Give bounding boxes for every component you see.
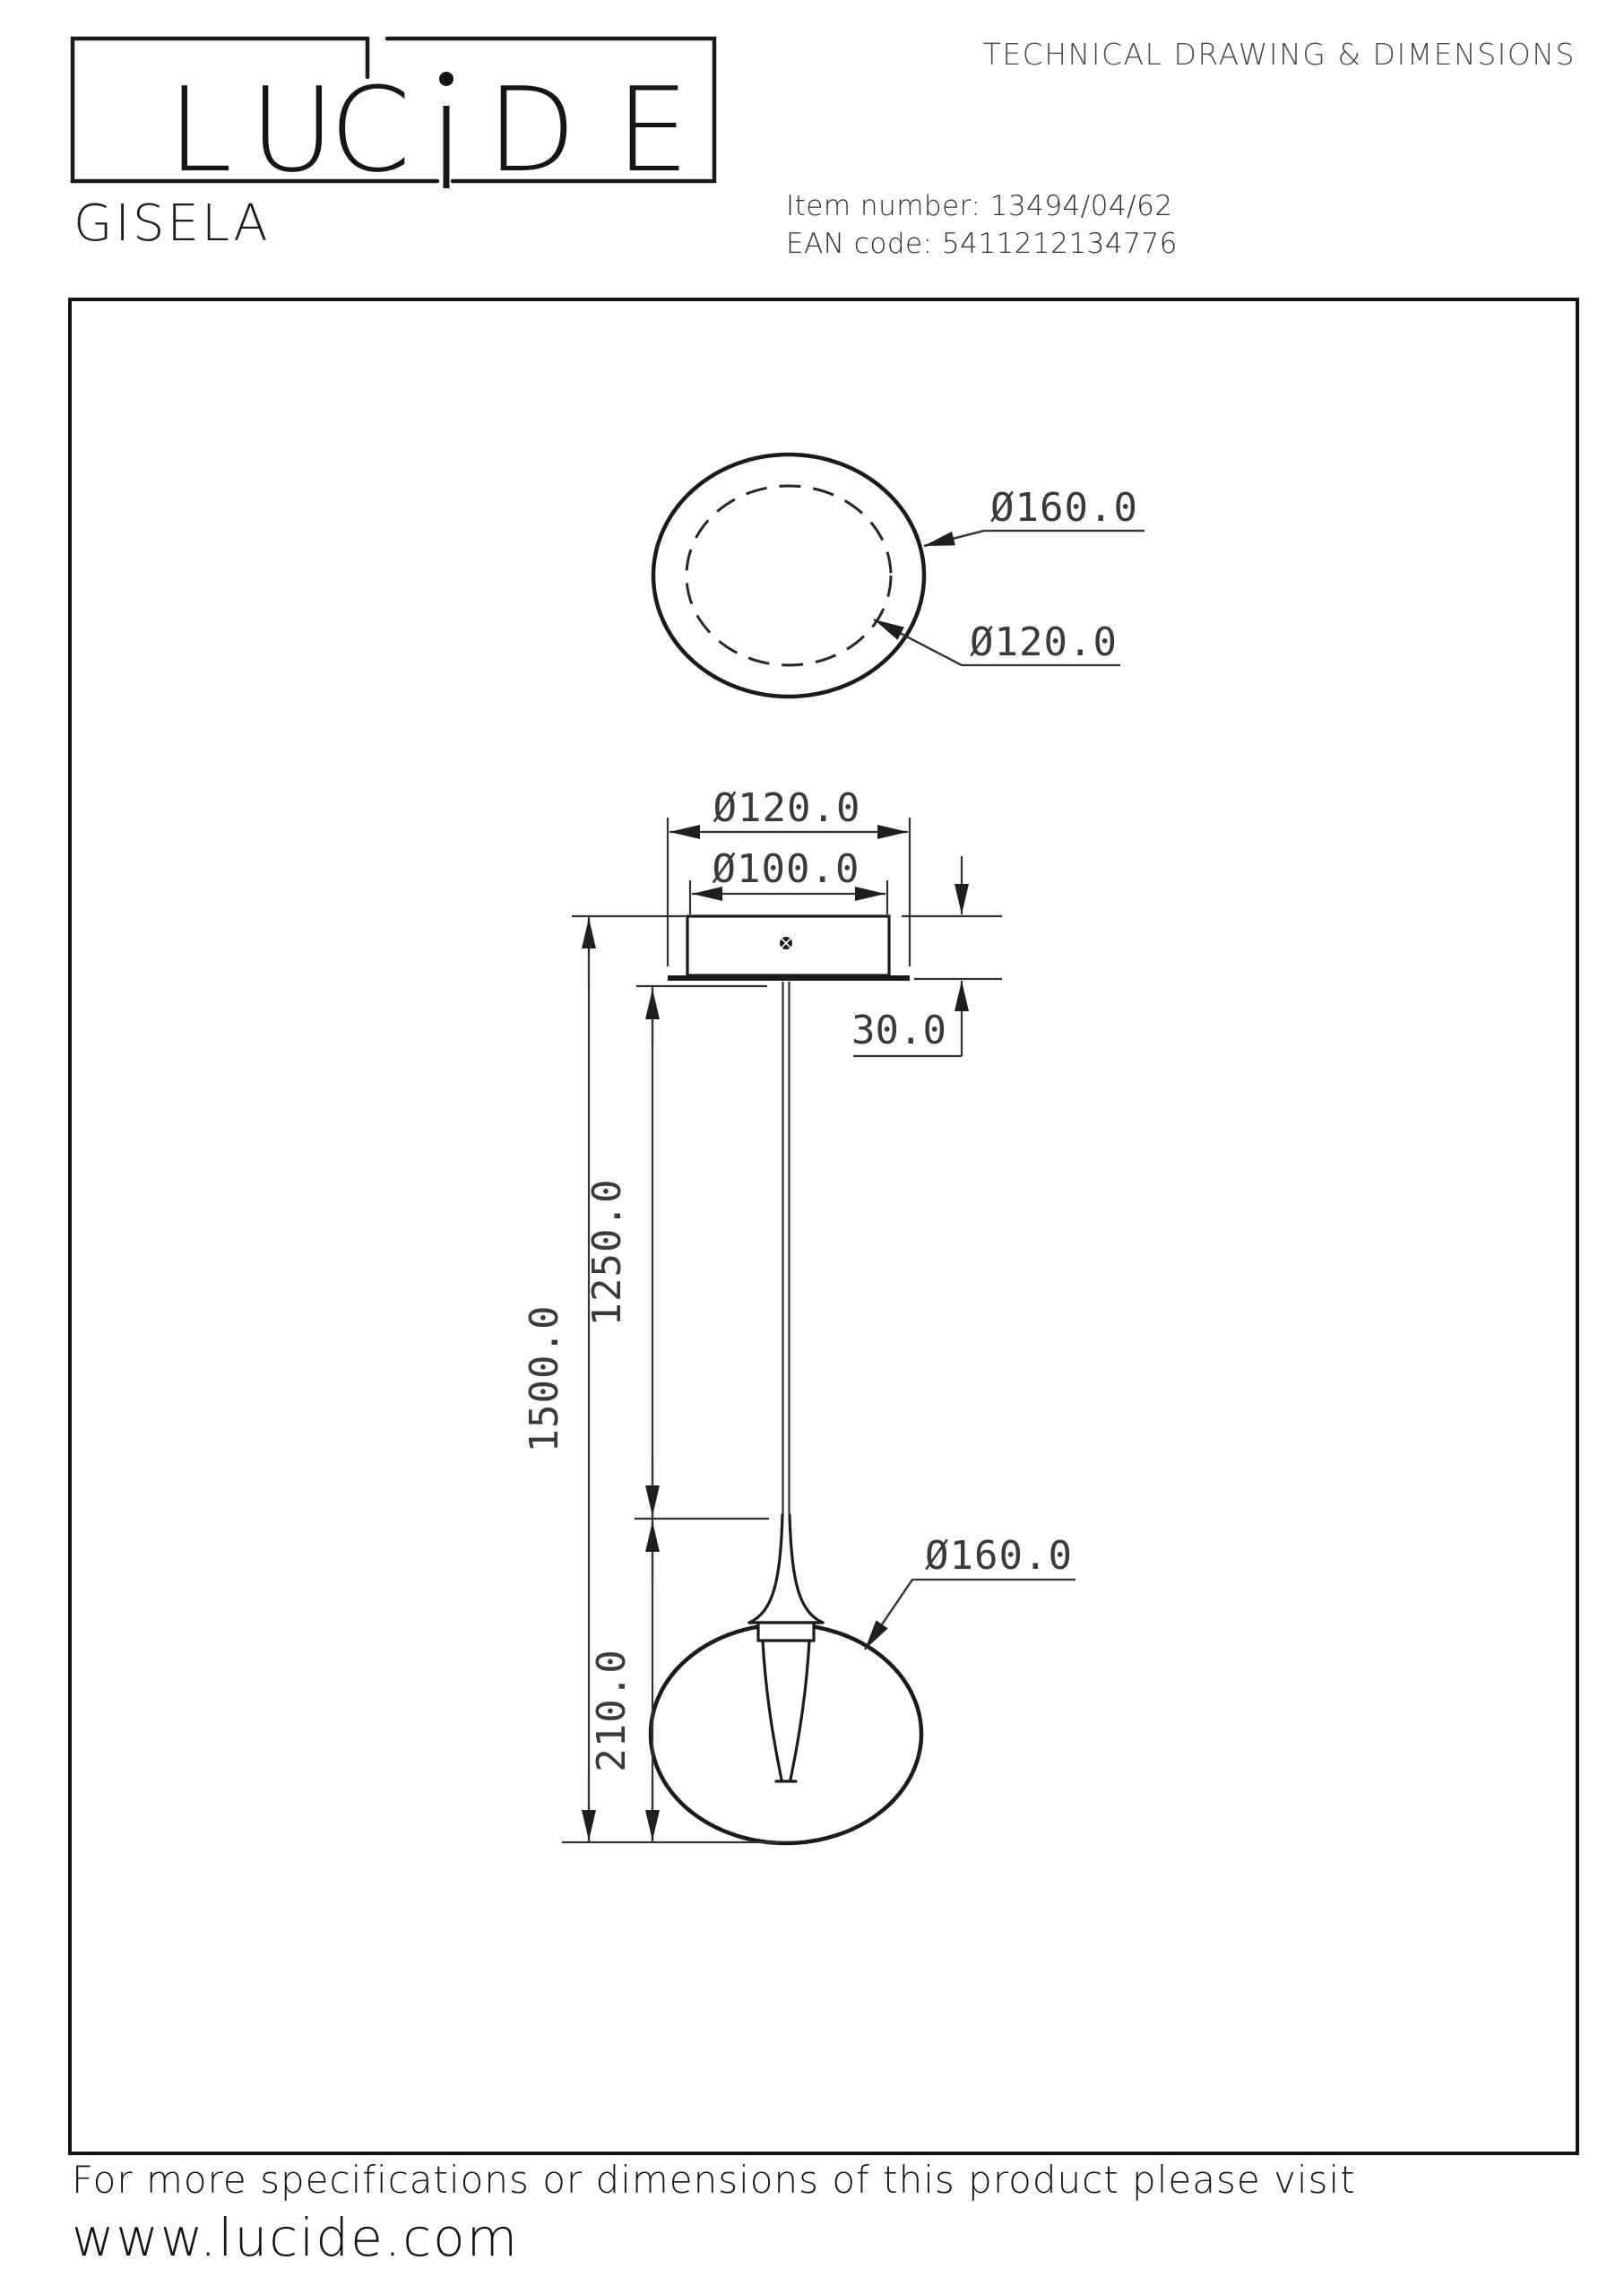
- inner-stem-left: [763, 1641, 782, 1780]
- canopy-screw: [780, 937, 792, 949]
- canopy: [668, 916, 910, 981]
- dim-label-top-inner: Ø120.0: [970, 619, 1118, 665]
- brand-logo: L U C D E: [73, 39, 714, 198]
- dim-label-canopy-height: 30.0: [851, 1008, 946, 1053]
- front-view: Ø120.0 Ø100.0: [522, 785, 1075, 1843]
- ean-code: EAN code: 5411212134776: [786, 228, 1178, 260]
- dim-suspension-length: 1250.0: [584, 986, 652, 1519]
- dim-top-outer-diameter: Ø160.0: [924, 485, 1145, 546]
- document-title: TECHNICAL DRAWING & DIMENSIONS: [983, 37, 1576, 72]
- drawing-border: [70, 299, 1577, 2153]
- socket-collar: [758, 1623, 814, 1641]
- glass-shade: [651, 1624, 921, 1843]
- top-view: Ø160.0 Ø120.0: [653, 455, 1145, 697]
- dim-total-drop: 1500.0: [522, 916, 589, 1842]
- logo-letter-l: L: [168, 62, 232, 198]
- logo-letter-c: C: [330, 62, 411, 198]
- product-name: GISELA: [73, 195, 271, 253]
- dim-label-lamp-height: 210.0: [589, 1649, 635, 1771]
- sheet-canvas: L U C D E TECHNICAL DRAWING & DIMENSIONS…: [0, 0, 1624, 2295]
- logo-letter-d: D: [487, 62, 576, 198]
- dim-lamp-height: 210.0: [589, 1519, 652, 1842]
- dim-canopy-fixing-diameter: Ø100.0: [690, 846, 887, 914]
- dim-label-shade-diameter: Ø160.0: [925, 1533, 1073, 1579]
- top-view-outer-ring: [653, 455, 924, 697]
- technical-sheet-page: L U C D E TECHNICAL DRAWING & DIMENSIONS…: [0, 0, 1624, 2295]
- dim-shade-diameter: Ø160.0: [865, 1533, 1075, 1650]
- dim-label-canopy-diameter: Ø120.0: [713, 785, 861, 831]
- footer-website: www.lucide.com: [72, 2207, 519, 2268]
- inner-stem-right: [790, 1641, 809, 1780]
- ceiling-plate: [668, 975, 910, 981]
- item-number: Item number: 13494/04/62: [786, 190, 1173, 222]
- logo-letter-e: E: [616, 62, 689, 198]
- dim-label-total-drop: 1500.0: [522, 1305, 567, 1453]
- suspension-cable: [783, 982, 790, 1515]
- footer-note: For more specifications or dimensions of…: [72, 2158, 1356, 2202]
- top-view-inner-ring: [687, 486, 891, 665]
- dim-label-canopy-fixing: Ø100.0: [713, 846, 860, 892]
- dim-label-suspension-length: 1250.0: [584, 1179, 630, 1327]
- dim-label-top-outer: Ø160.0: [990, 485, 1138, 531]
- logo-letter-u: U: [249, 62, 334, 198]
- logo-letter-i: [439, 72, 454, 188]
- socket-cone: [749, 1515, 823, 1781]
